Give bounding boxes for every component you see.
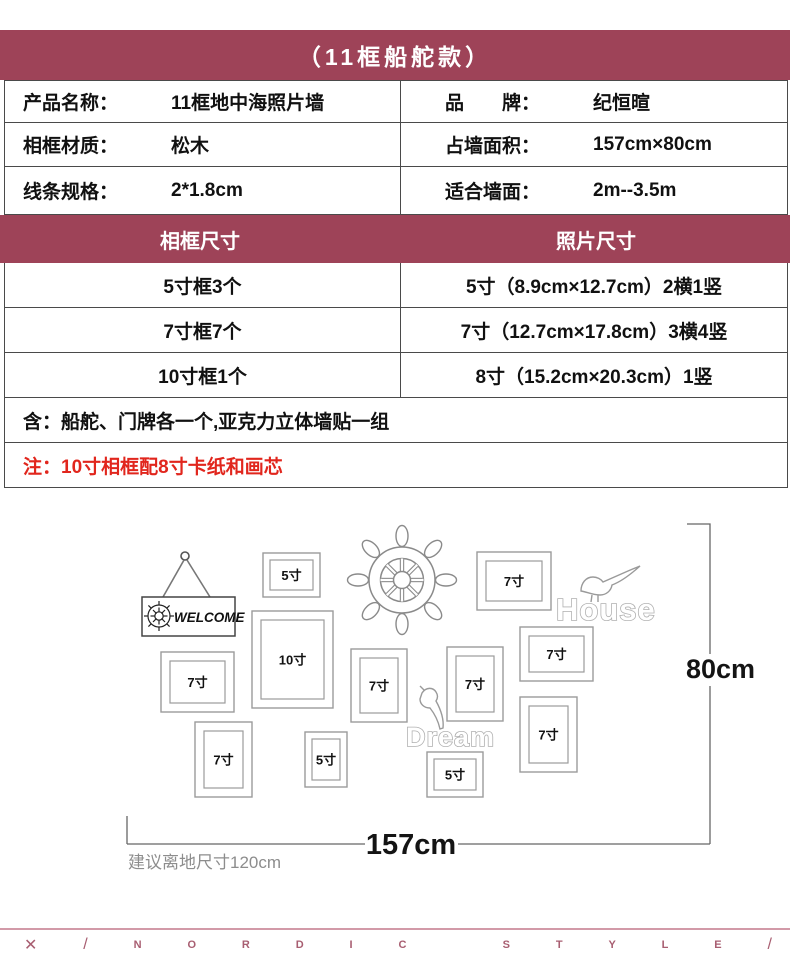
spec-value: 11框地中海照片墙: [171, 88, 324, 115]
ship-wheel-icon: [348, 526, 457, 635]
footer-letter: [452, 936, 456, 954]
footer-letter: C: [398, 939, 406, 951]
photo-frame: 5寸: [263, 553, 320, 597]
frame-size-label: 5寸: [316, 753, 336, 768]
house-decor-text: House: [556, 592, 656, 627]
footer-letter: R: [242, 939, 250, 951]
photo-frame: 7寸: [161, 652, 234, 712]
photo-wall-diagram: WELCOME 5寸7寸10寸7寸7寸7寸7寸7寸7寸5寸5寸 House Dr…: [0, 494, 790, 886]
footer-letter: E: [714, 939, 721, 951]
photo-frame: 7寸: [447, 647, 503, 721]
spec-label: 品 牌：: [401, 88, 593, 115]
spec-row-material: 相框材质： 松木 占墙面积： 157cm×80cm: [5, 123, 787, 167]
spec-value: 2*1.8cm: [171, 180, 243, 202]
floor-height-note: 建议离地尺寸120cm: [128, 853, 281, 872]
frame-size-label: 7寸: [213, 753, 233, 768]
photo-frame: 7寸: [477, 552, 551, 610]
footer-letter: D: [296, 939, 304, 951]
spec-value: 松木: [171, 131, 209, 158]
photo-frame: 5寸: [427, 752, 483, 797]
photo-frame: 10寸: [252, 611, 333, 708]
photo-size: 5寸（8.9cm×12.7cm）2横1竖: [401, 263, 787, 307]
frame-size-label: 7寸: [369, 679, 389, 694]
welcome-sign-label: WELCOME: [174, 610, 245, 625]
spec-value: 157cm×80cm: [593, 134, 712, 156]
footer-letter: S: [503, 939, 510, 951]
diagram-svg: WELCOME 5寸7寸10寸7寸7寸7寸7寸7寸7寸5寸5寸 House Dr…: [0, 494, 790, 886]
height-dimension-label: 80cm: [686, 654, 755, 684]
spec-label: 相框材质：: [5, 131, 171, 158]
x-mark-glyph: ✕: [24, 935, 37, 955]
footer-letter: N: [134, 939, 142, 951]
size-row-5inch: 5寸框3个 5寸（8.9cm×12.7cm）2横1竖: [5, 263, 787, 308]
footer-letter: I: [350, 939, 353, 951]
photo-size: 7寸（12.7cm×17.8cm）3横4竖: [401, 308, 787, 352]
frame-size-header: 相框尺寸: [0, 215, 400, 263]
note-row: 注：10寸相框配8寸卡纸和画芯: [5, 443, 787, 488]
footer-letters: ✕/NORDIC STYLE/: [24, 933, 772, 957]
spec-label: 适合墙面：: [401, 177, 593, 204]
hook-icon: [181, 552, 189, 560]
photo-size-header: 照片尺寸: [400, 215, 790, 263]
dream-decor-text: Dream: [406, 722, 495, 752]
spec-row-moulding: 线条规格： 2*1.8cm 适合墙面： 2m--3.5m: [5, 167, 787, 215]
footer-letter: L: [662, 939, 669, 951]
footer-letter: T: [556, 939, 563, 951]
slash-glyph: /: [83, 936, 87, 954]
width-dimension-label: 157cm: [366, 829, 456, 861]
product-title-bar: （11框船舵款）: [0, 30, 790, 80]
frame-size-label: 7寸: [465, 677, 485, 692]
includes-text: 含：船舵、门牌各一个,亚克力立体墙贴一组: [5, 398, 389, 442]
frame-size-label: 10寸: [279, 653, 306, 668]
size-row-10inch: 10寸框1个 8寸（15.2cm×20.3cm）1竖: [5, 353, 787, 398]
frame-size-label: 7寸: [538, 728, 558, 743]
frame-size-label: 7寸: [546, 647, 566, 662]
note-text: 注：10寸相框配8寸卡纸和画芯: [5, 443, 283, 487]
welcome-sign: WELCOME: [142, 552, 245, 636]
photo-frame: 5寸: [305, 732, 347, 787]
spec-label: 线条规格：: [5, 177, 171, 204]
photo-size: 8寸（15.2cm×20.3cm）1竖: [401, 353, 787, 397]
spec-label: 产品名称：: [5, 88, 171, 115]
frame-count: 5寸框3个: [5, 263, 401, 307]
photo-frame: 7寸: [520, 697, 577, 772]
frame-size-label: 7寸: [504, 574, 524, 589]
product-spec-page: （11框船舵款） 产品名称： 11框地中海照片墙 品 牌： 纪恒暄 相框材质： …: [0, 0, 790, 966]
footer-letter: Y: [608, 939, 615, 951]
frame-size-label: 7寸: [187, 675, 207, 690]
includes-row: 含：船舵、门牌各一个,亚克力立体墙贴一组: [5, 398, 787, 443]
footer-divider: [0, 928, 790, 930]
spec-value: 纪恒暄: [593, 88, 650, 115]
frame-count: 10寸框1个: [5, 353, 401, 397]
size-row-7inch: 7寸框7个 7寸（12.7cm×17.8cm）3横4竖: [5, 308, 787, 353]
slash-glyph: /: [768, 936, 772, 954]
frame-size-label: 5寸: [281, 568, 301, 583]
footer-letter: O: [187, 939, 196, 951]
frame-size-label: 5寸: [445, 768, 465, 783]
spec-row-product-name: 产品名称： 11框地中海照片墙 品 牌： 纪恒暄: [5, 80, 787, 123]
size-header-row: 相框尺寸 照片尺寸: [0, 215, 790, 263]
frame-count: 7寸框7个: [5, 308, 401, 352]
photo-frame: 7寸: [351, 649, 407, 722]
photo-frame: 7寸: [520, 627, 593, 681]
house-decor: House: [556, 566, 656, 627]
spec-label: 占墙面积：: [401, 131, 593, 158]
spec-table: 产品名称： 11框地中海照片墙 品 牌： 纪恒暄 相框材质： 松木 占墙面积： …: [4, 80, 788, 488]
mini-ship-wheel-icon: [144, 601, 174, 631]
photo-frame: 7寸: [195, 722, 252, 797]
spec-value: 2m--3.5m: [593, 180, 676, 202]
